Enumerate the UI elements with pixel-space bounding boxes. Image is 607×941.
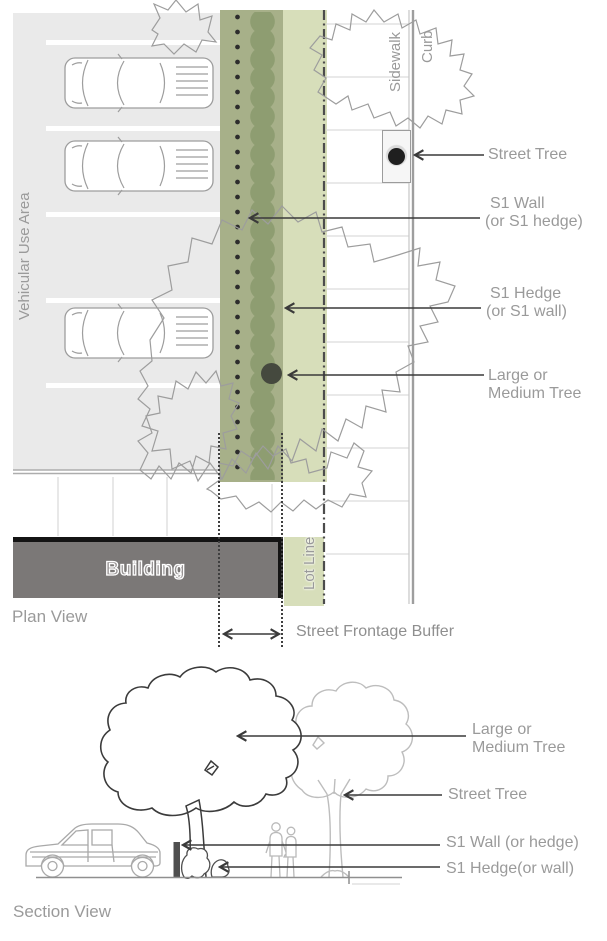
section-large-tree <box>101 667 301 877</box>
plan-view-title: Plan View <box>12 607 87 627</box>
s1-hedge-callout-line2: (or S1 wall) <box>486 303 567 321</box>
s1-wall-callout: S1 Wall (or S1 hedge) <box>485 195 583 231</box>
section-wall-callout: S1 Wall (or hedge) <box>446 834 579 852</box>
section-people <box>266 823 296 877</box>
section-ground <box>36 871 402 884</box>
parking-stripe <box>46 383 220 388</box>
section-street-tree <box>289 682 412 877</box>
lot-line-label: Lot Line <box>301 512 318 590</box>
street-frontage-buffer-label: Street Frontage Buffer <box>296 623 454 641</box>
s1-hedge-callout: S1 Hedge (or S1 wall) <box>486 285 567 321</box>
s1-wall-dotted-line <box>234 13 241 479</box>
sidewalk-label: Sidewalk <box>387 12 404 92</box>
curb-lines <box>409 10 413 604</box>
large-tree-callout-line2: Medium Tree <box>488 385 581 403</box>
building-label: Building <box>106 559 186 581</box>
section-street-tree-callout: Street Tree <box>448 786 527 804</box>
section-callout-arrows <box>183 736 466 867</box>
buffer-band-light <box>283 10 327 482</box>
section-large-tree-line1: Large or <box>472 721 565 739</box>
walkway-joints <box>58 477 272 536</box>
street-frontage-buffer-diagram: Building <box>0 0 607 941</box>
large-tree-callout-line1: Large or <box>488 367 581 385</box>
s1-hedge-callout-line1: S1 Hedge <box>486 285 567 303</box>
large-medium-tree-dot <box>261 363 282 384</box>
section-large-tree-callout: Large or Medium Tree <box>472 721 565 757</box>
vehicular-use-area <box>13 13 220 470</box>
buffer-extension-line-left <box>218 433 220 647</box>
section-large-tree-line2: Medium Tree <box>472 739 565 757</box>
vehicular-use-area-label: Vehicular Use Area <box>16 160 33 320</box>
section-s1-hedge <box>182 848 229 879</box>
section-hedge-callout: S1 Hedge(or wall) <box>446 860 574 878</box>
building: Building <box>13 537 283 598</box>
parking-stripe <box>46 40 220 45</box>
large-tree-callout: Large or Medium Tree <box>488 367 581 403</box>
section-view-title: Section View <box>13 902 111 922</box>
parking-stripe <box>46 212 220 217</box>
s1-wall-callout-line1: S1 Wall <box>485 195 583 213</box>
street-tree-dot <box>388 148 405 165</box>
street-tree-callout: Street Tree <box>488 146 567 164</box>
curb-label: Curb <box>419 13 436 63</box>
buffer-extension-line-right <box>281 433 283 647</box>
s1-wall-callout-line2: (or S1 hedge) <box>485 213 583 231</box>
vehicular-area-edge <box>13 470 220 474</box>
parking-stripe <box>46 126 220 131</box>
s1-hedge-scallops <box>249 12 276 480</box>
section-car <box>26 824 160 877</box>
section-s1-wall <box>174 842 181 878</box>
sidewalk-joints <box>326 24 409 554</box>
parking-stripe <box>46 298 220 303</box>
